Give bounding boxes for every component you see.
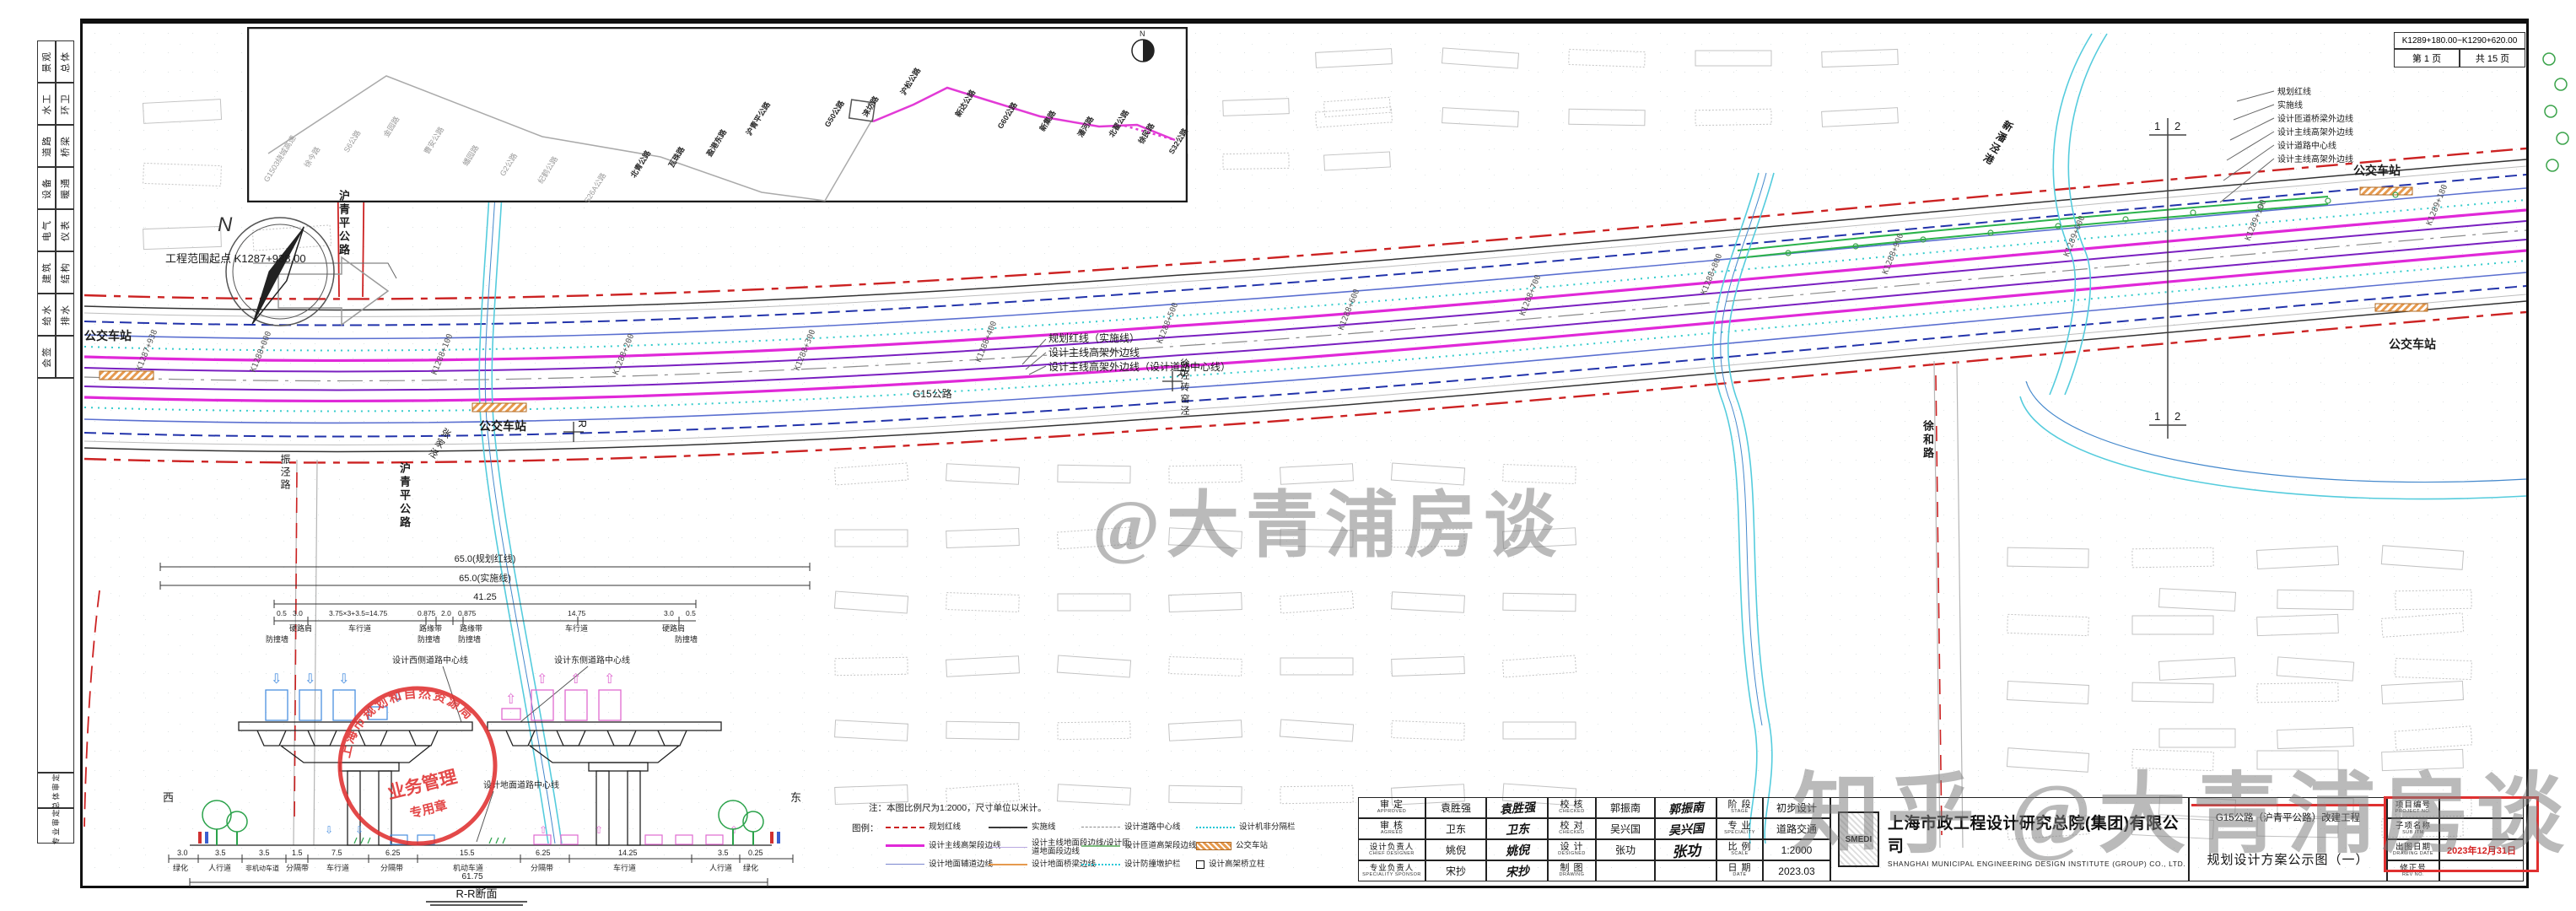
role-cell: 审 核AGREED (1358, 818, 1425, 839)
legend-label: 设计匝道高架段边线 (1124, 842, 1197, 850)
sign-strip-cell: 总体审定 (37, 773, 74, 808)
lane-dim: 0.5 (686, 609, 696, 617)
legend-item: 设计道路中心线 (1081, 823, 1181, 832)
bname: 车行道 (613, 863, 636, 872)
legend-swatch-cyan-dot (1081, 864, 1120, 865)
watermark-bottom: 知乎 @大青浦房谈 (1792, 742, 2571, 870)
meta-key-cell: 日 期DATE (1716, 860, 1763, 881)
meta-key-en: SPECIALITY (1724, 831, 1755, 836)
total-dim: 61.75 (461, 872, 482, 881)
name-cell: 袁胜强 (1425, 797, 1486, 818)
legend-item: 规划红线 (886, 823, 961, 832)
meta-key-en: DATE (1733, 873, 1746, 878)
discipline-label: 电气 (40, 219, 53, 241)
legend-item: 设计地面桥梁边线 (989, 860, 1096, 869)
bname: 人行道 (208, 863, 231, 872)
legend-swatch-red-dash (886, 827, 924, 828)
legend-swatch-green (1081, 845, 1120, 847)
role-label-en: DESIGNED (1558, 852, 1586, 857)
sign-strip-cell: 道路 (37, 125, 56, 167)
bdim: 15.5 (460, 849, 475, 857)
role-cell: 校 对CHECKED (1548, 818, 1596, 839)
role-cell: 设计负责人CHIEF DESIGNER (1358, 839, 1425, 860)
chainage-range: K1289+180.00~K1290+620.00 (2402, 36, 2518, 46)
meta-key-cell: 阶 段STAGE (1716, 797, 1763, 818)
sign-strip-cell: 水工 (37, 83, 56, 125)
bdim: 3.5 (215, 849, 226, 857)
legend-label: 实施线 (1032, 823, 1056, 832)
signature-cell: 张功 (1655, 839, 1716, 860)
signature: 宋抄 (1505, 862, 1529, 881)
bus-stop-label: 公交车站 (84, 327, 132, 344)
annotation-line: 实施线 (2277, 98, 2303, 111)
section-marker-label: R (576, 420, 589, 428)
person-name: 张功 (1615, 843, 1636, 857)
bname: 分隔带 (531, 864, 553, 872)
lane-dim: 0.875 (458, 609, 477, 617)
match-line-number: 1 (2154, 410, 2160, 423)
role-cell: 审 定APPROVED (1358, 797, 1425, 818)
legend-item: 公交车站 (1196, 842, 1268, 850)
signature: 张功 (1671, 838, 1701, 861)
lane-dim: 3.75×3+3.5=14.75 (329, 609, 388, 617)
legend-item: 设计地面辅道边线 (886, 860, 993, 869)
legend-label: 设计防撞墩护栏 (1124, 860, 1181, 869)
stamp-line3: 专用章 (408, 797, 449, 821)
legend-item: 实施线 (989, 823, 1056, 832)
watermark-center: @大青浦房谈 (1092, 466, 1563, 571)
annotation-line: 设计匝道桥梁外边线 (2277, 111, 2353, 124)
lane-name: 路缘带 (460, 623, 482, 633)
bdim: 3.5 (718, 849, 729, 857)
signature-cell: 姚倪 (1486, 839, 1548, 860)
person-name: 姚倪 (1446, 843, 1466, 857)
info-key-en: REV NO. (2402, 873, 2424, 878)
role-label-en: CHECKED (1559, 831, 1584, 836)
ground-vehicles: ⇩⇩ ⇧⇧⇧ (325, 824, 738, 844)
lane-name: 硬路肩 (662, 623, 685, 633)
role-label-en: CHECKED (1559, 810, 1584, 815)
svg-text:N: N (1140, 30, 1145, 38)
legend-item: 设计高架桥立柱 (1196, 860, 1265, 869)
approval-row-label: 总体审定 (51, 772, 62, 809)
bus-stop-label: 公交车站 (2389, 336, 2436, 353)
legend-swatch-magenta (886, 844, 924, 847)
bdim: 7.5 (331, 849, 342, 857)
svg-text:⇧: ⇧ (539, 824, 547, 836)
legend-label: 设计机非分隔栏 (1239, 823, 1296, 832)
name-cell: 卫东 (1425, 818, 1486, 839)
bdim: 0.25 (748, 849, 763, 857)
discipline-label: 排水 (58, 304, 72, 326)
svg-text:⇩: ⇩ (271, 672, 282, 687)
lane-name: 路缘带 (419, 623, 442, 633)
match-line-number: 1 (2154, 120, 2160, 132)
lane-dim: 3.0 (664, 609, 674, 617)
legend-label: 公交车站 (1236, 842, 1268, 850)
legend-label: 规划红线 (929, 823, 961, 832)
legend-swatch-bus-stop (1196, 842, 1231, 850)
scale-note: 注：本图比例尺为1:2000，尺寸单位以米计。 (869, 801, 1047, 814)
sign-strip-cell: 景观 (37, 40, 56, 83)
page-number: 第 1 页 (2412, 51, 2441, 65)
discipline-label: 会签 (40, 346, 53, 368)
match-line-number: 2 (2175, 120, 2180, 132)
west-label: 西 (163, 791, 174, 804)
sign-strip-cell: 排水 (56, 294, 74, 336)
svg-text:⇧: ⇧ (604, 672, 615, 687)
legend-item: 设计防撞墩护栏 (1081, 860, 1181, 869)
signature: 姚倪 (1505, 841, 1529, 860)
role-cell: 设 计DESIGNED (1548, 839, 1596, 860)
svg-text:⇧: ⇧ (570, 672, 581, 687)
lane-dim: 2.0 (441, 609, 451, 617)
discipline-label: 结构 (58, 261, 72, 283)
role-label-en: CHIEF DESIGNER (1369, 852, 1415, 857)
dim-label: 41.25 (473, 592, 497, 602)
person-name: 卫东 (1446, 822, 1466, 836)
svg-text:⇧: ⇧ (505, 693, 516, 707)
lane-dim: 0.5 (277, 609, 287, 617)
discipline-label: 给水 (40, 304, 53, 326)
signature-cell: 郭振南 (1655, 797, 1716, 818)
discipline-label: 环卫 (58, 93, 72, 115)
legend-swatch-cyan-diamond (1196, 827, 1235, 828)
role-label-en: APPROVED (1377, 810, 1407, 815)
discipline-label: 建筑 (40, 261, 53, 283)
signature: 吴兴国 (1668, 819, 1704, 838)
legend-swatch-solid-dark (989, 827, 1027, 828)
role-label-en: AGREED (1381, 831, 1403, 836)
margin-trees (2543, 53, 2568, 171)
svg-text:⇩: ⇩ (355, 824, 364, 836)
discipline-label: 设备 (40, 177, 53, 199)
east-label: 东 (790, 791, 801, 804)
start-point-label: 工程范围起点 K1287+938.00 (165, 250, 306, 266)
wall-name: 防撞墙 (266, 634, 288, 644)
section-title-underline (426, 902, 527, 905)
approval-row-label: 专业审定 (51, 807, 62, 844)
bname: 绿化 (173, 863, 188, 872)
name-cell: 张功 (1596, 839, 1655, 860)
signature-cell (1655, 860, 1716, 881)
meta-key-cell: 比 例SCALE (1716, 839, 1763, 860)
lane-dim: 0.875 (418, 609, 436, 617)
sign-strip-cell: 会签 (37, 336, 56, 378)
legend-swatch-centerline (1081, 827, 1120, 827)
lane-name: 硬路肩 (289, 623, 312, 633)
svg-text:⇩: ⇩ (325, 824, 333, 836)
cross-section-drawing: 65.0(规划红线) 65.0(实施线) 41.25 0.5 3.0 3.75×… (139, 548, 822, 911)
meta-key-en: STAGE (1731, 810, 1749, 815)
centerline-label: 设计东侧道路中心线 (554, 655, 630, 666)
sign-strip-cell (56, 336, 74, 378)
annotation-line: 规划红线 (2277, 84, 2311, 97)
wall-name: 防撞墙 (458, 634, 481, 644)
svg-text:N: N (218, 213, 233, 236)
road-name-label: G15公路 (913, 386, 952, 401)
role-label-en: SPECIALITY SPONSOR (1362, 873, 1421, 878)
discipline-label: 水工 (40, 93, 53, 115)
person-name: 吴兴国 (1610, 822, 1641, 836)
svg-text:⇧: ⇧ (595, 824, 603, 836)
dim-label: 65.0(实施线) (459, 572, 511, 584)
sign-strip-cell: 仪表 (56, 209, 74, 251)
annotation-line: 设计主线高架外边线（设计道路中心线） (1048, 359, 1231, 374)
legend-swatch-lavender (989, 847, 1027, 848)
lane-name: 车行道 (565, 623, 588, 633)
role-cell: 校 核CHECKED (1548, 797, 1596, 818)
signature: 卫东 (1505, 820, 1529, 838)
person-name: 袁胜强 (1441, 800, 1471, 815)
bname: 分隔带 (380, 864, 403, 872)
person-name: 郭振南 (1610, 800, 1641, 815)
elevated-decks (239, 722, 721, 845)
legend-label: 设计高架桥立柱 (1209, 860, 1265, 869)
sign-strip-empty (37, 378, 74, 773)
discipline-label: 道路 (40, 135, 53, 157)
meta-key-en: SCALE (1731, 852, 1749, 857)
sign-strip-cell: 电气 (37, 209, 56, 251)
legend-item: 设计主线高架段边线 (886, 842, 1001, 850)
signature-cell: 卫东 (1486, 818, 1548, 839)
bname: 非机动车道 (245, 864, 279, 872)
lane-dim: 3.0 (293, 609, 303, 617)
svg-text:⇧: ⇧ (536, 672, 547, 687)
bname: 车行道 (326, 863, 349, 872)
bname: 绿化 (743, 863, 758, 872)
legend-caption: 图例： (852, 822, 879, 834)
discipline-label: 仪表 (58, 219, 72, 241)
bus-stop-label: 公交车站 (479, 418, 526, 434)
bdim: 6.25 (385, 849, 401, 857)
svg-text:⇩: ⇩ (338, 672, 349, 687)
bname: 人行道 (709, 863, 732, 872)
role-label-en: DRAWING (1560, 873, 1585, 878)
annotation-line: 规划红线（实施线） (1048, 331, 1140, 345)
planning-bureau-stamp: 上海市规划和自然资源局 业务管理 专用章 (323, 669, 512, 860)
sign-strip-cell: 桥梁 (56, 125, 74, 167)
lane-dim: 14.75 (568, 609, 586, 617)
bdim: 3.0 (177, 849, 188, 857)
bdim: 6.25 (536, 849, 551, 857)
bus-stop-label: 公交车站 (2353, 162, 2401, 179)
legend-label: 设计地面辅道边线 (929, 860, 993, 869)
svg-text:⇧: ⇧ (730, 824, 738, 836)
name-cell (1596, 860, 1655, 881)
centerline-label: 设计西侧道路中心线 (392, 655, 468, 666)
bdim: 1.5 (292, 849, 303, 857)
road-name-label: 沪青平公路 (336, 190, 352, 257)
stamp-line2: 业务管理 (385, 767, 459, 804)
svg-text:⇩: ⇩ (304, 672, 315, 687)
name-cell: 郭振南 (1596, 797, 1655, 818)
legend-swatch-orange (989, 864, 1027, 865)
match-line (2149, 118, 2186, 439)
role-cell: 专业负责人SPECIALITY SPONSOR (1358, 860, 1425, 881)
bdim: 3.5 (259, 849, 270, 857)
name-cell: 吴兴国 (1596, 818, 1655, 839)
sign-strip-cell: 结构 (56, 251, 74, 294)
wall-name: 防撞墙 (418, 634, 440, 644)
discipline-label: 景观 (40, 51, 53, 73)
existing-road-edges (84, 166, 2526, 445)
signature-cell: 宋抄 (1486, 860, 1548, 881)
road-name-label: 徐和路 (1920, 420, 1936, 461)
wall-name: 防撞墙 (675, 634, 698, 644)
bname: 分隔带 (286, 864, 309, 872)
compass-icon: N (218, 213, 334, 328)
signature: 郭振南 (1668, 798, 1704, 817)
signature-cell: 袁胜强 (1486, 797, 1548, 818)
total-pages-cell: 共 15 页 (2460, 49, 2525, 67)
annotation-line: 设计主线高架外边线 (2277, 125, 2353, 137)
annotation-line: 设计主线高架外边线 (2277, 152, 2353, 164)
name-cell: 宋抄 (1425, 860, 1486, 881)
range-cell: K1289+180.00~K1290+620.00 (2394, 32, 2525, 49)
person-name: 宋抄 (1446, 864, 1466, 878)
road-name-label: 振泾路 (278, 454, 293, 492)
discipline-label: 总体 (58, 51, 72, 73)
legend-item: 设计匝道高架段边线 (1081, 842, 1197, 850)
legend-item: 设计机非分隔栏 (1196, 823, 1296, 832)
annotation-line: 设计道路中心线 (2277, 138, 2336, 151)
discipline-label: 暖通 (58, 177, 72, 199)
sign-strip-cell: 设备 (37, 167, 56, 209)
sign-strip-cell: 暖通 (56, 167, 74, 209)
section-title: R-R断面 (455, 887, 497, 900)
total-pages: 共 15 页 (2476, 51, 2509, 65)
legend-label: 设计道路中心线 (1124, 823, 1181, 832)
sign-strip-cell: 建筑 (37, 251, 56, 294)
bname: 机动车道 (453, 863, 483, 872)
signature-cell: 吴兴国 (1655, 818, 1716, 839)
signature: 袁胜强 (1499, 798, 1535, 817)
discipline-label: 桥梁 (58, 135, 72, 157)
legend-swatch-pier (1196, 860, 1204, 869)
match-line-number: 2 (2175, 410, 2180, 423)
sign-strip-cell: 专业审定 (37, 808, 74, 844)
start-range-arrow (278, 257, 388, 325)
name-cell: 姚倪 (1425, 839, 1486, 860)
sign-strip-cell: 给水 (37, 294, 56, 336)
bdim: 14.25 (618, 849, 638, 857)
dim-label: 65.0(规划红线) (455, 553, 516, 564)
meta-key-cell: 专 业SPECIALITY (1716, 818, 1763, 839)
role-cell: 制 图DRAWING (1548, 860, 1596, 881)
legend-swatch-slate (886, 864, 924, 865)
drawing-sheet: 景观 总体 水工 环卫 道路 桥梁 设备 暖通 电气 仪表 建筑 结构 给水 排… (0, 0, 2576, 911)
annotation-line: 设计主线高架外边线 (1048, 345, 1140, 359)
page-cell: 第 1 页 (2394, 49, 2460, 67)
sign-strip-cell: 环卫 (56, 83, 74, 125)
sign-strip-cell: 总体 (56, 40, 74, 83)
lane-name: 车行道 (348, 623, 371, 633)
road-name-label: 沪青平公路 (396, 462, 412, 530)
